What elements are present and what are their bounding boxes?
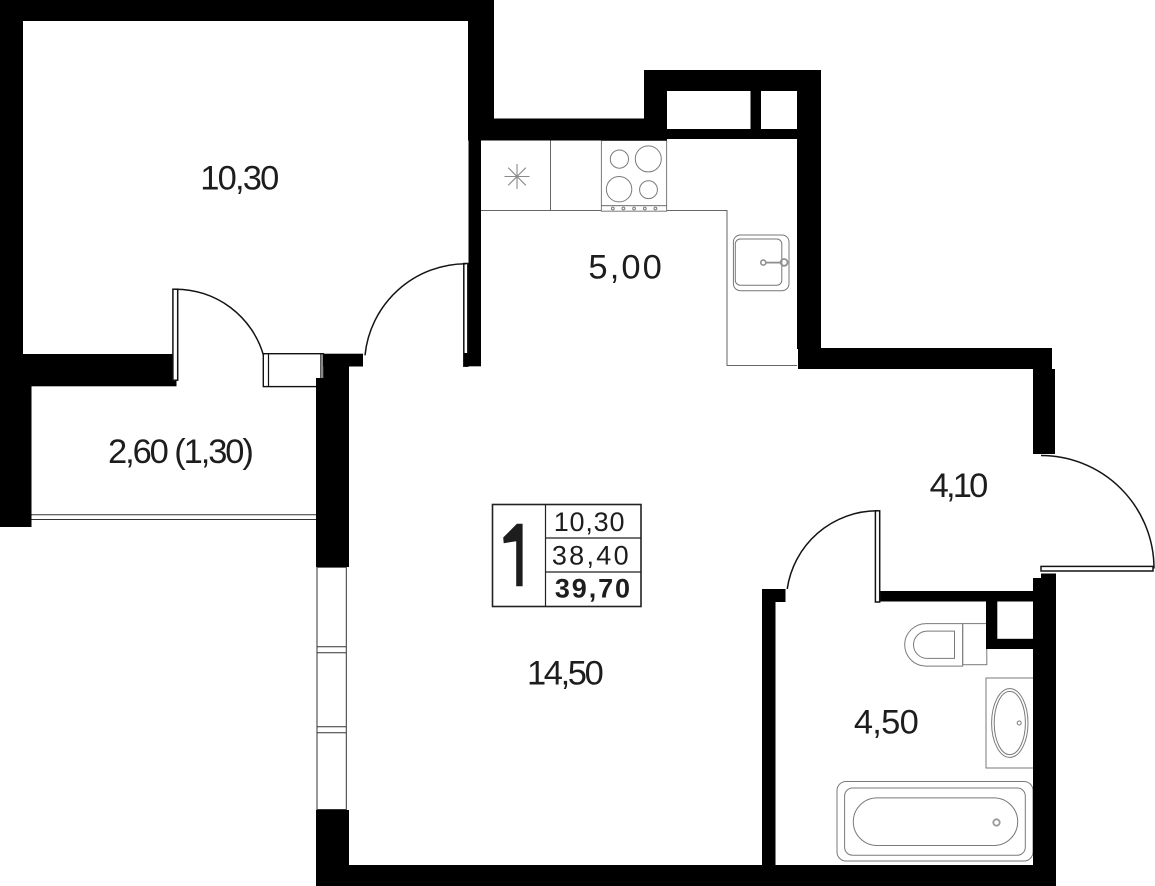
svg-text:4,50: 4,50 [854, 704, 918, 742]
svg-text:10,30: 10,30 [200, 160, 278, 198]
svg-text:2,60 (1,30): 2,60 (1,30) [108, 433, 252, 471]
svg-text:38,40: 38,40 [552, 540, 631, 570]
svg-text:39,70: 39,70 [555, 574, 632, 604]
svg-text:5,00: 5,00 [588, 249, 664, 287]
svg-text:10,30: 10,30 [554, 507, 626, 537]
svg-text:14,50: 14,50 [527, 655, 603, 693]
svg-text:4,10: 4,10 [930, 467, 988, 505]
